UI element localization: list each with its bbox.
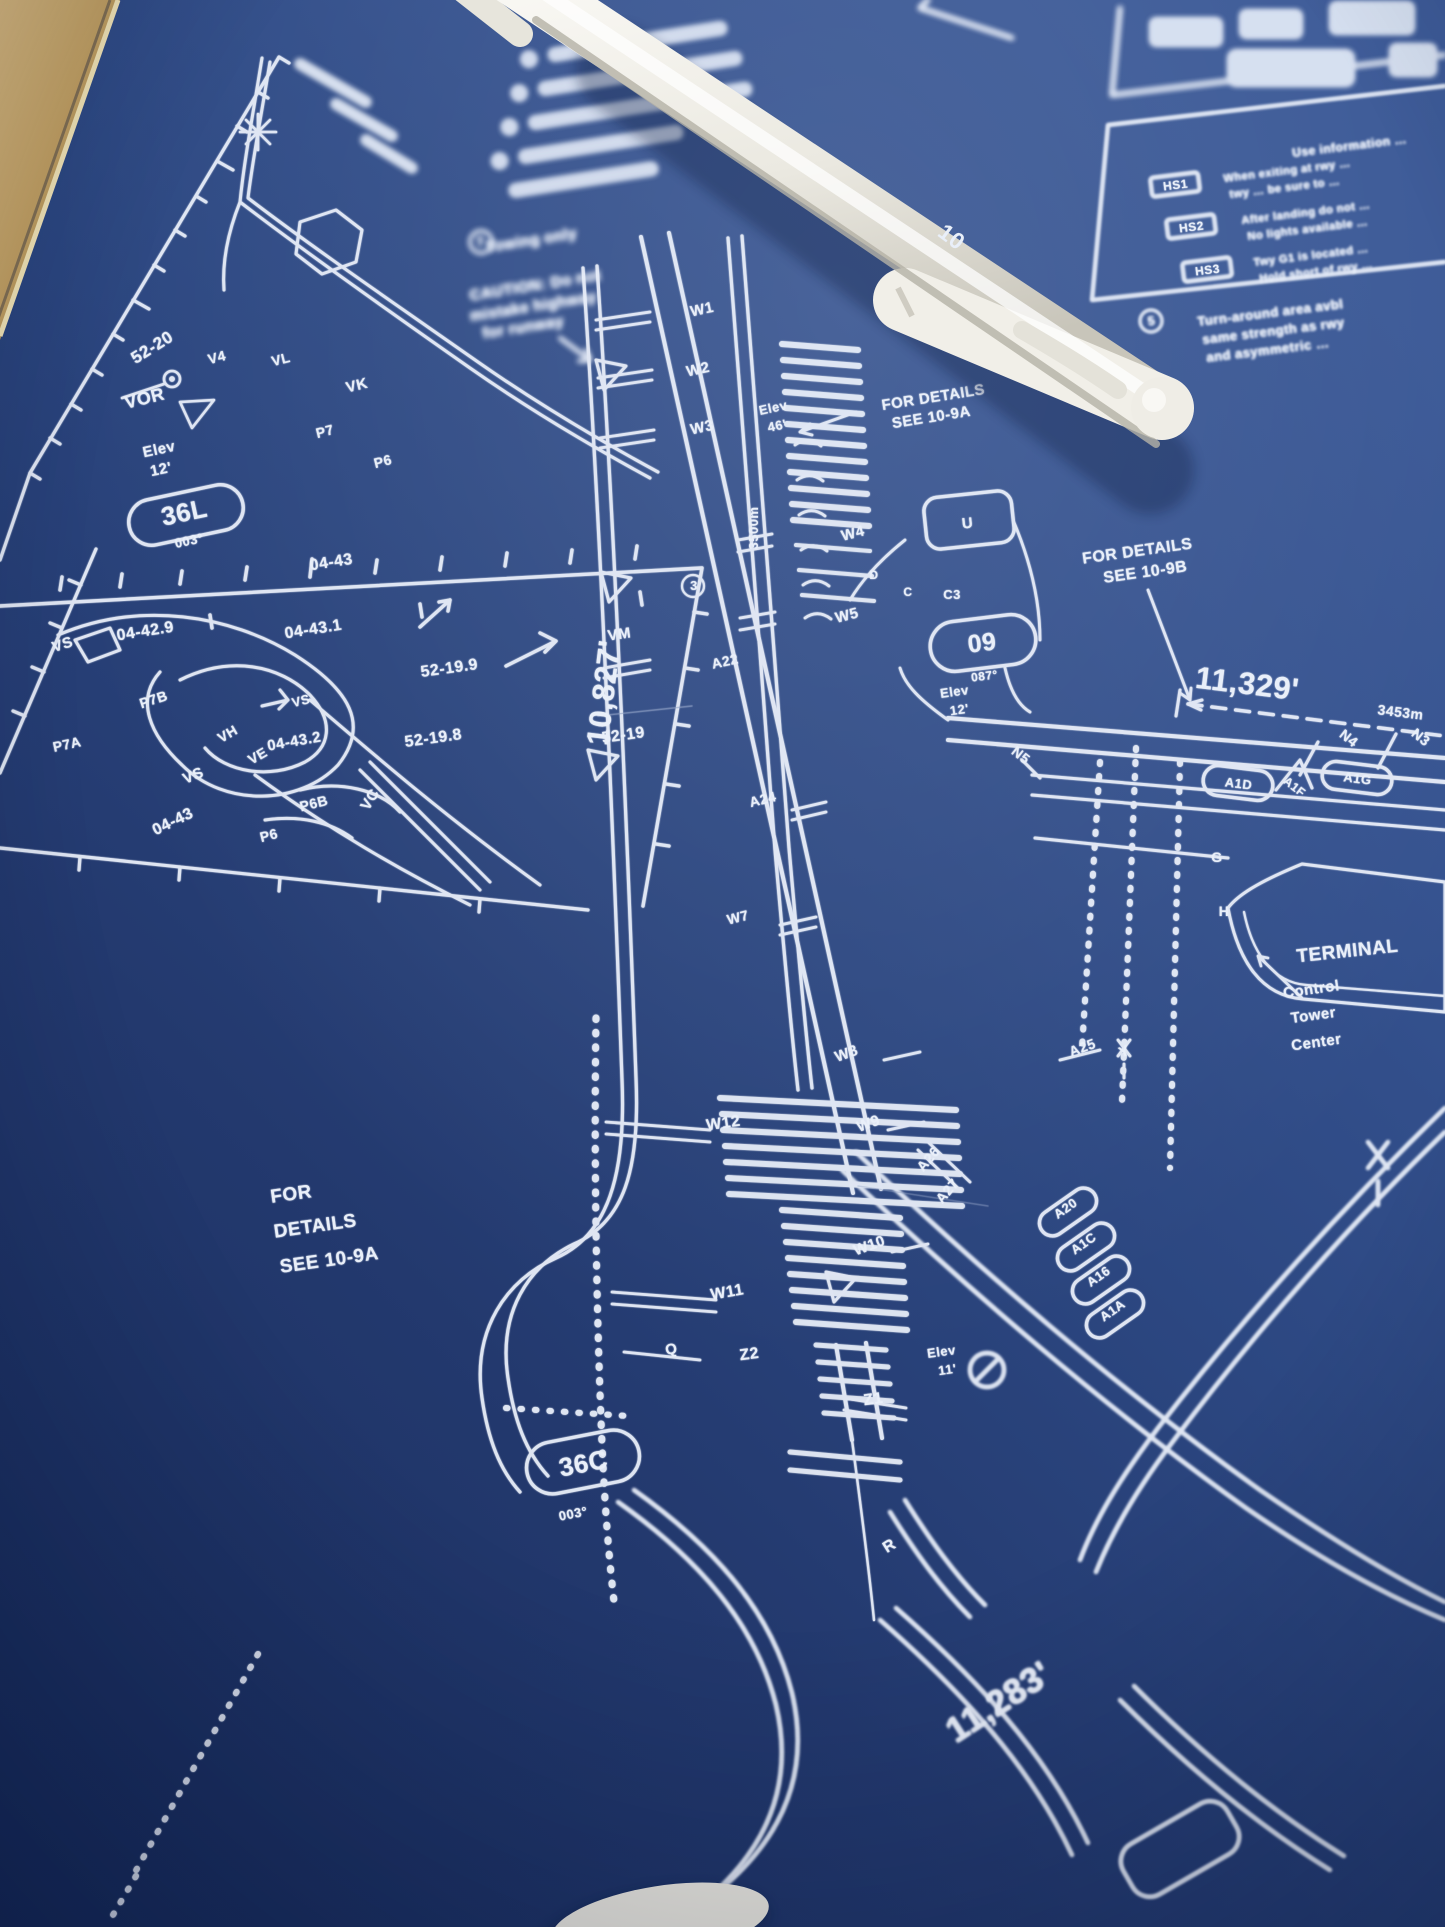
vignette xyxy=(0,0,1445,1927)
blueprint-photo: 52-20VORV4VLVKP7P6Elev12'36L003°04-4304-… xyxy=(0,0,1445,1927)
airport-diagram-scene: 52-20VORV4VLVKP7P6Elev12'36L003°04-4304-… xyxy=(0,0,1445,1927)
